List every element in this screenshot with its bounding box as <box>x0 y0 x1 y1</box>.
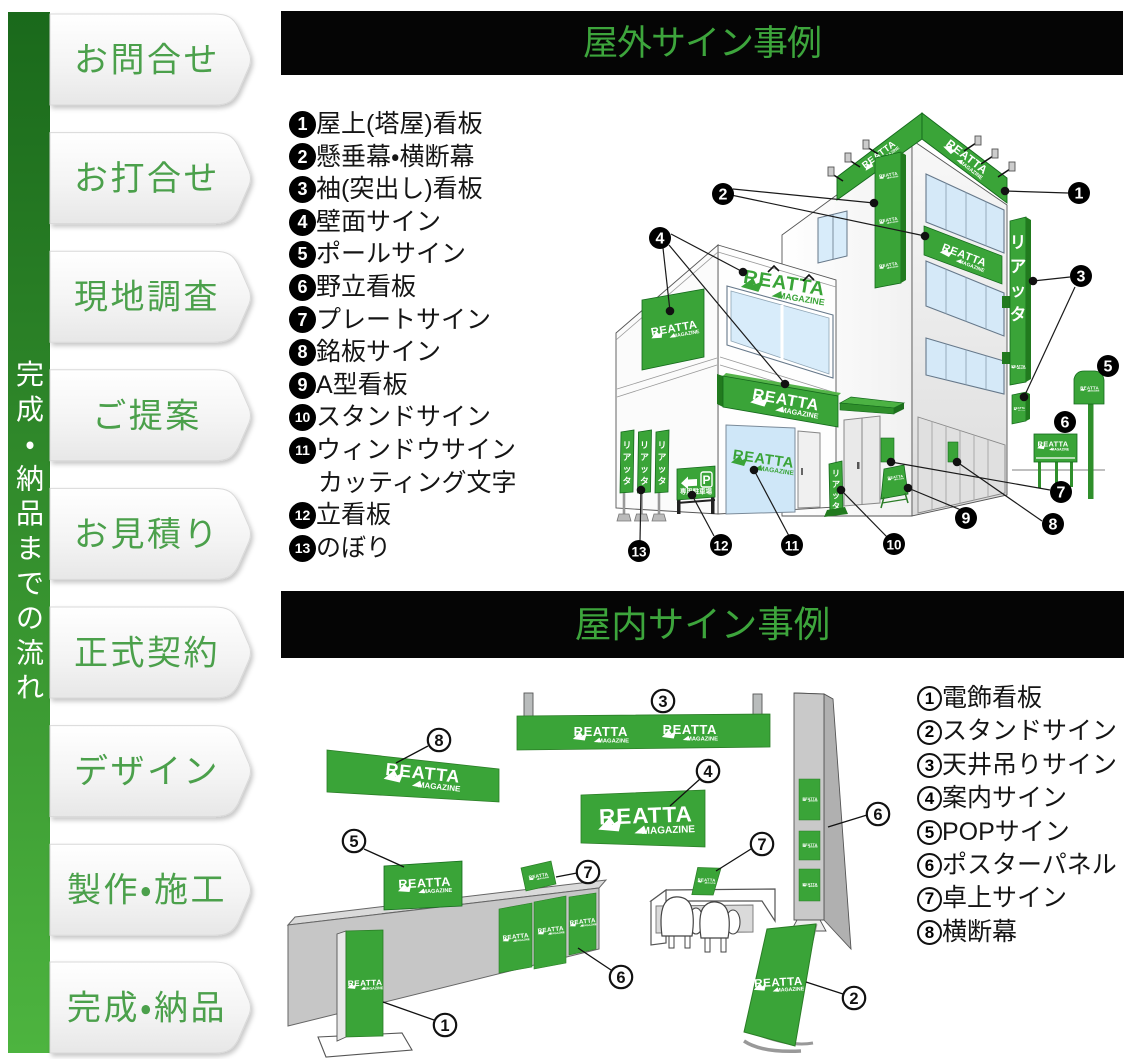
svg-text:P: P <box>702 473 710 487</box>
svg-text:6: 6 <box>616 969 625 987</box>
svg-text:6: 6 <box>873 806 882 824</box>
svg-text:4: 4 <box>703 763 713 781</box>
svg-text:8: 8 <box>1049 517 1058 534</box>
svg-text:9: 9 <box>962 511 971 528</box>
svg-text:2: 2 <box>719 187 728 204</box>
svg-text:製作・施工: 製作・施工 <box>67 872 227 910</box>
svg-text:お打合せ: お打合せ <box>74 160 220 198</box>
svg-text:専用駐車場: 専用駐車場 <box>680 487 713 496</box>
svg-text:正式契約: 正式契約 <box>74 635 220 673</box>
svg-text:6: 6 <box>1061 415 1070 432</box>
svg-text:7: 7 <box>583 864 592 882</box>
svg-text:8: 8 <box>434 732 443 750</box>
svg-text:12: 12 <box>713 539 728 554</box>
svg-text:5: 5 <box>349 833 358 851</box>
svg-text:10: 10 <box>886 538 901 553</box>
svg-text:7: 7 <box>1057 485 1066 502</box>
svg-text:3: 3 <box>658 693 667 711</box>
svg-text:デザイン: デザイン <box>74 753 220 791</box>
svg-text:5: 5 <box>1104 359 1113 376</box>
svg-text:3: 3 <box>1077 269 1086 286</box>
svg-text:1: 1 <box>1075 186 1084 203</box>
svg-text:完成・納品: 完成・納品 <box>67 990 227 1028</box>
svg-text:13: 13 <box>631 545 647 560</box>
svg-text:ご提案: ご提案 <box>92 397 202 435</box>
svg-text:11: 11 <box>785 539 800 554</box>
svg-text:2: 2 <box>849 990 858 1008</box>
svg-text:現地調査: 現地調査 <box>74 279 220 317</box>
svg-text:4: 4 <box>656 231 665 248</box>
svg-text:7: 7 <box>757 836 766 854</box>
svg-text:お問合せ: お問合せ <box>74 42 220 80</box>
svg-text:お見積り: お見積り <box>74 516 220 554</box>
svg-text:1: 1 <box>440 1017 449 1035</box>
